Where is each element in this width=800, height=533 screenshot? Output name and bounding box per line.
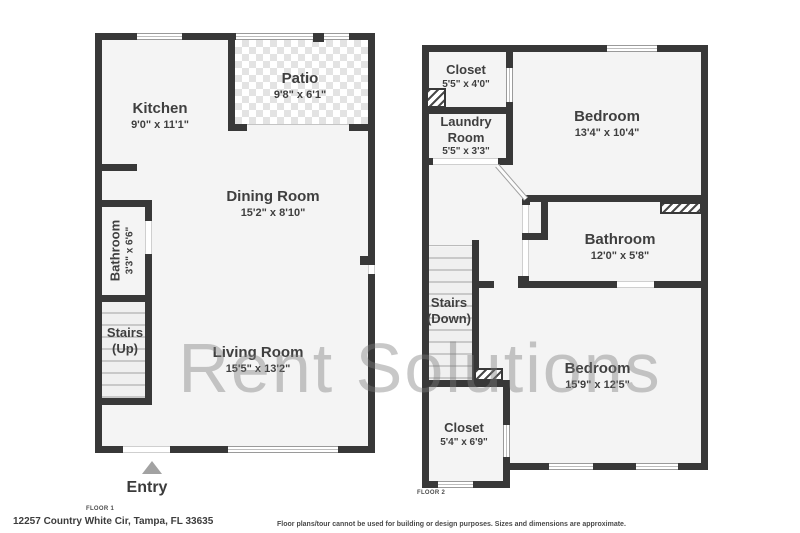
entry-arrow-icon xyxy=(142,461,162,474)
window xyxy=(549,463,593,470)
watermark: Rent Solutions xyxy=(100,328,740,408)
stairs-edge-line xyxy=(429,245,472,246)
floor1-tag: FLOOR 1 xyxy=(86,506,114,512)
room-label-laundry-room: Laundry Room 5'5" x 3'3" xyxy=(424,114,508,159)
door-opening xyxy=(433,158,498,165)
window xyxy=(236,33,349,40)
entry-door-opening xyxy=(123,446,170,453)
room-label-kitchen: Kitchen 9'0" x 11'1" xyxy=(95,100,225,133)
room-label-stairs-down: Stairs (Down) xyxy=(416,295,482,326)
room-label-patio: Patio 9'8" x 6'1" xyxy=(240,70,360,103)
wall-segment xyxy=(422,158,433,165)
door-opening xyxy=(368,265,375,274)
wall-segment xyxy=(349,124,375,131)
room-label-bathroom-f1: Bathroom 3'3" x 6'6" xyxy=(100,206,145,296)
hatched-area xyxy=(660,202,702,214)
room-label-closet-top: Closet 5'5" x 4'0" xyxy=(424,62,508,91)
wall-segment xyxy=(518,276,529,288)
entry-label: Entry xyxy=(109,479,185,497)
wall-segment xyxy=(422,45,708,52)
wall-segment xyxy=(95,164,137,171)
floor2-tag: FLOOR 2 xyxy=(417,490,445,496)
window xyxy=(438,481,473,488)
door-opening xyxy=(522,240,529,276)
wall-segment xyxy=(422,107,513,114)
room-label-dining-room: Dining Room 15'2" x 8'10" xyxy=(178,188,368,221)
wall-segment xyxy=(228,33,235,131)
wall-segment xyxy=(313,33,324,42)
window xyxy=(137,33,182,40)
door-opening xyxy=(522,205,529,233)
wall-segment xyxy=(228,124,247,131)
wall-segment xyxy=(95,295,152,302)
room-label-bedroom-top: Bedroom 13'4" x 10'4" xyxy=(517,108,697,141)
patio-edge-line xyxy=(247,124,349,125)
disclaimer-text: Floor plans/tour cannot be used for buil… xyxy=(277,521,626,528)
floor-plan-canvas: Kitchen 9'0" x 11'1" Patio 9'8" x 6'1" D… xyxy=(0,0,800,533)
window xyxy=(607,45,657,52)
wall-segment xyxy=(478,281,494,288)
property-address: 12257 Country White Cir, Tampa, FL 33635 xyxy=(13,516,213,527)
window xyxy=(636,463,678,470)
wall-segment xyxy=(498,158,513,165)
wall-segment xyxy=(530,195,708,202)
wall-segment xyxy=(368,33,375,265)
door-opening xyxy=(617,281,654,288)
window xyxy=(228,446,338,453)
room-label-bathroom-f2: Bathroom 12'0" x 5'8" xyxy=(545,231,695,264)
room-label-closet-bottom: Closet 5'4" x 6'9" xyxy=(422,420,506,449)
door-opening xyxy=(145,221,152,254)
wall-segment xyxy=(360,256,369,265)
